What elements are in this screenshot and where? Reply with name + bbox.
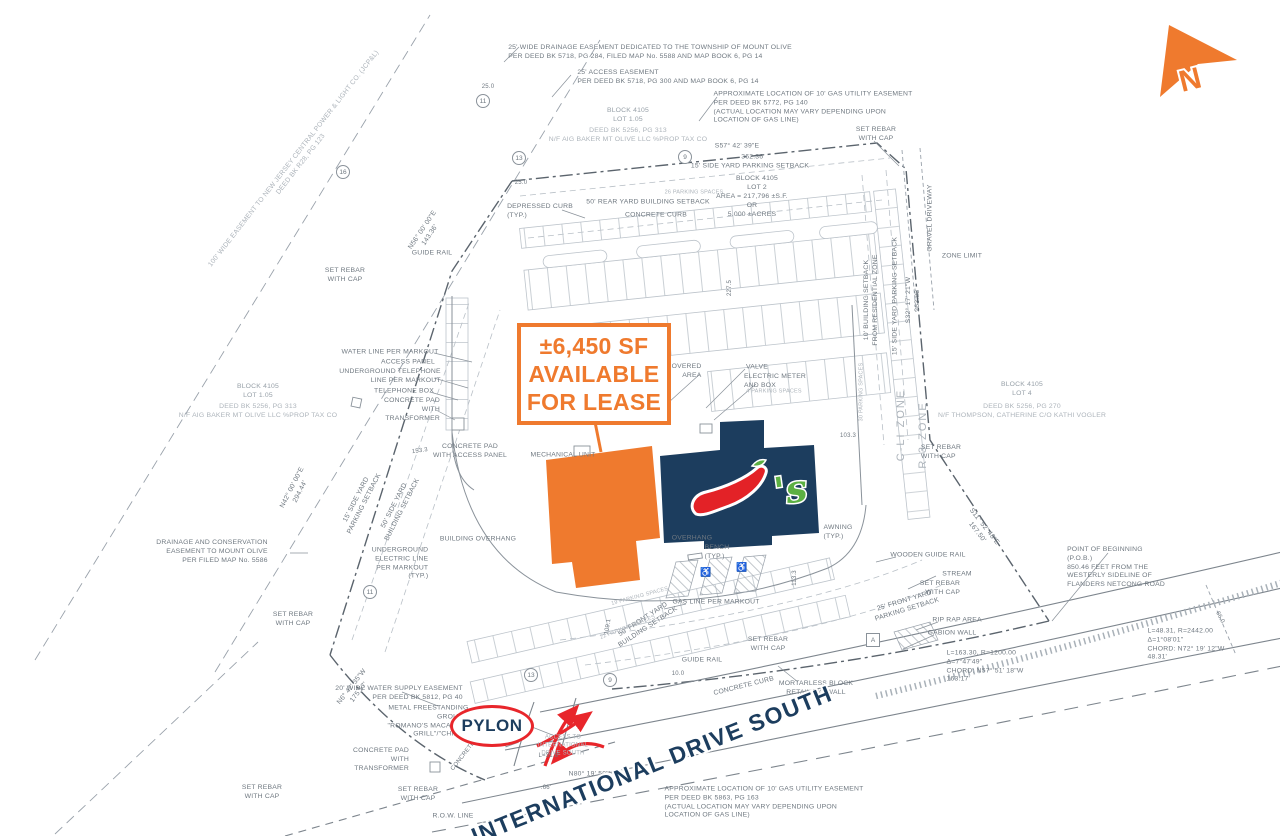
access-arrows bbox=[537, 708, 604, 766]
callout-line-sf: ±6,450 SF bbox=[540, 332, 649, 360]
pylon-sign: PYLON bbox=[450, 705, 534, 747]
lease-callout: ±6,450 SF AVAILABLE FOR LEASE bbox=[517, 323, 671, 425]
utility-pads bbox=[351, 397, 712, 772]
callout-line-available: AVAILABLE bbox=[529, 360, 660, 388]
parking-west-column bbox=[446, 298, 468, 430]
parking-south-rows bbox=[461, 556, 850, 703]
pylon-label: PYLON bbox=[461, 716, 522, 736]
north-arrow: N bbox=[1160, 25, 1237, 99]
chilis-wordmark: 's bbox=[771, 465, 810, 514]
north-arrow-label: N bbox=[1176, 62, 1205, 99]
site-plan: 's N 25' WIDE DRAINAGE EASEMENT DEDICATE… bbox=[0, 0, 1280, 836]
road-lines bbox=[285, 552, 1280, 836]
callout-line-for-lease: FOR LEASE bbox=[527, 388, 661, 416]
lease-building-footprint bbox=[546, 446, 660, 588]
